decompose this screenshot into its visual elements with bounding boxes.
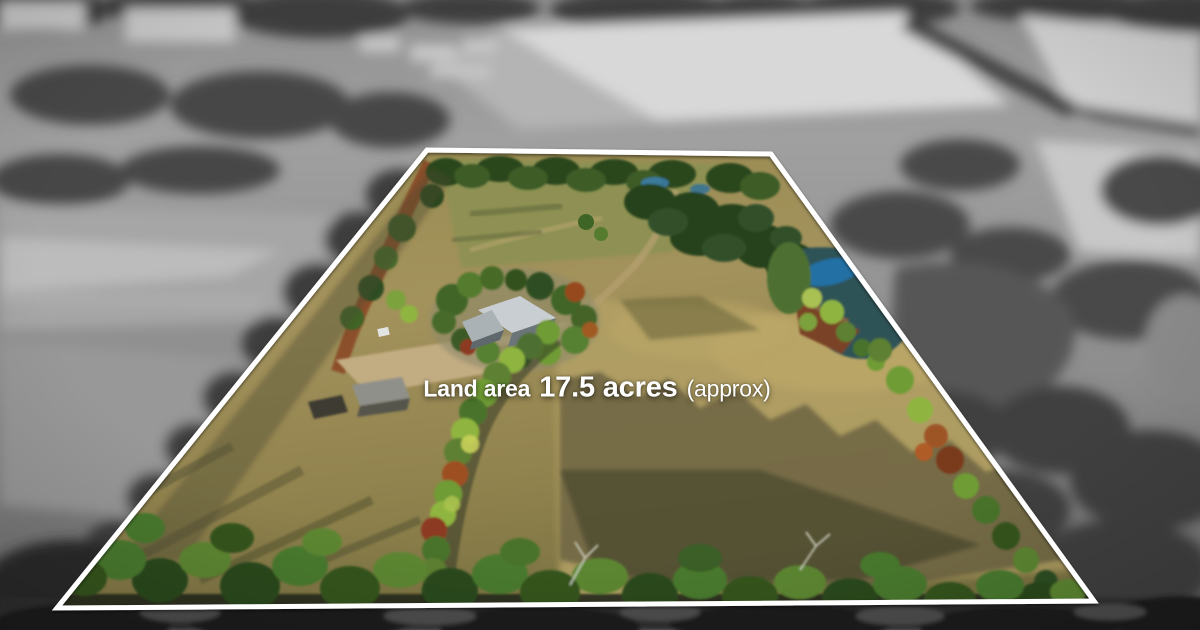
vignette [0,0,1200,630]
aerial-photo: Land area 17.5 acres (approx) [0,0,1200,630]
aerial-photo-canvas [0,0,1200,630]
land-area-value: 17.5 acres [539,372,677,405]
land-area-prefix: Land area [423,376,530,403]
land-area-label: Land area 17.5 acres (approx) [423,372,770,405]
land-area-qualifier: (approx) [687,376,771,403]
